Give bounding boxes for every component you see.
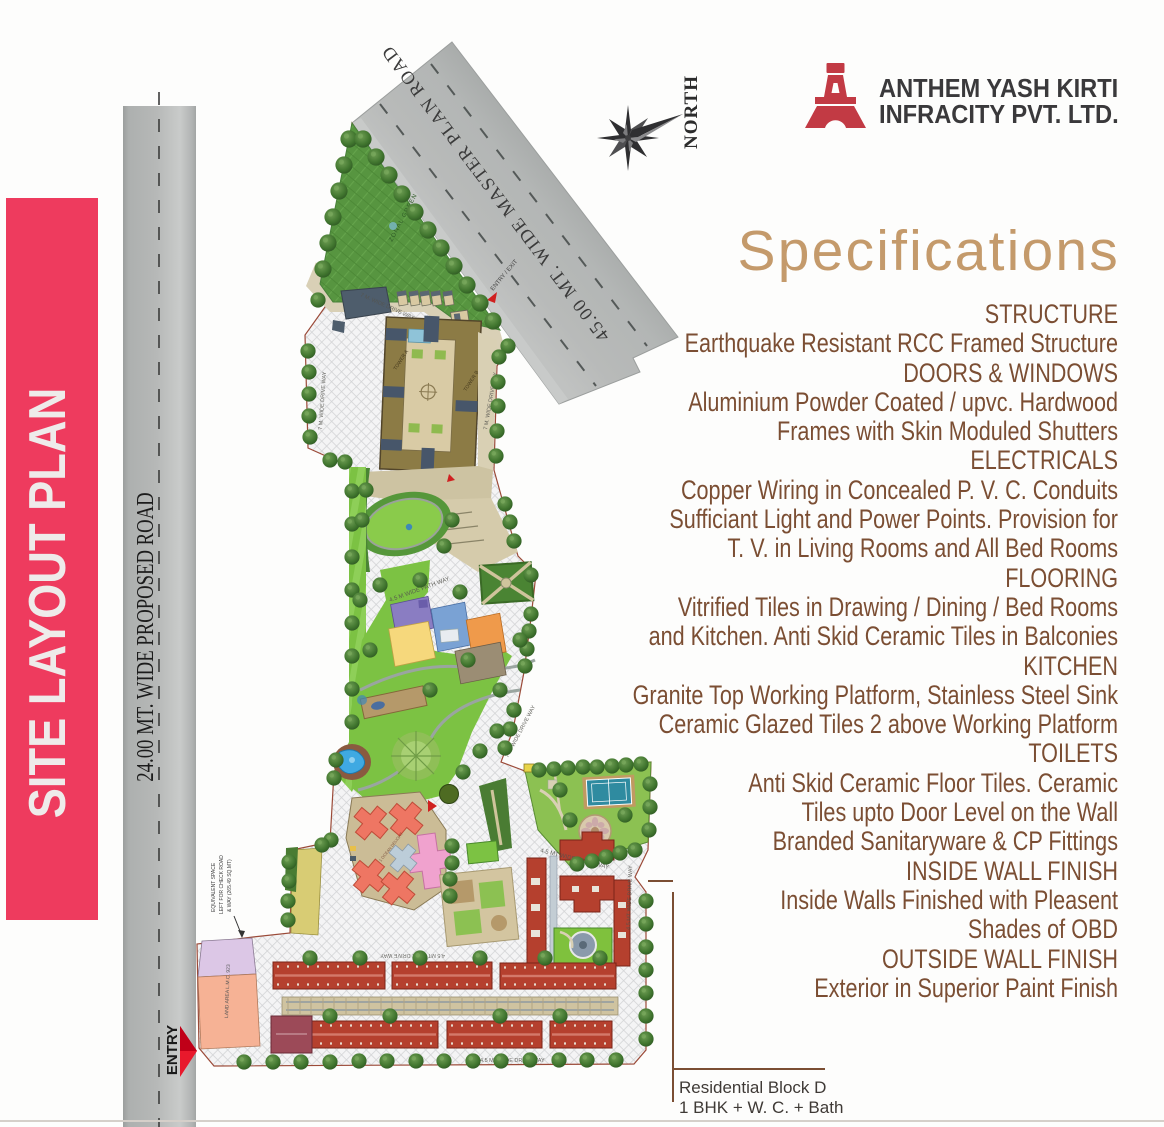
svg-text:ENTRY: ENTRY	[164, 1025, 181, 1075]
svg-text:NORTH: NORTH	[681, 75, 702, 149]
svg-text:24.00 MT. WIDE PROPOSED ROAD: 24.00 MT. WIDE PROPOSED ROAD	[132, 492, 159, 781]
svg-text:SITE LAYOUT PLAN: SITE LAYOUT PLAN	[19, 388, 77, 819]
